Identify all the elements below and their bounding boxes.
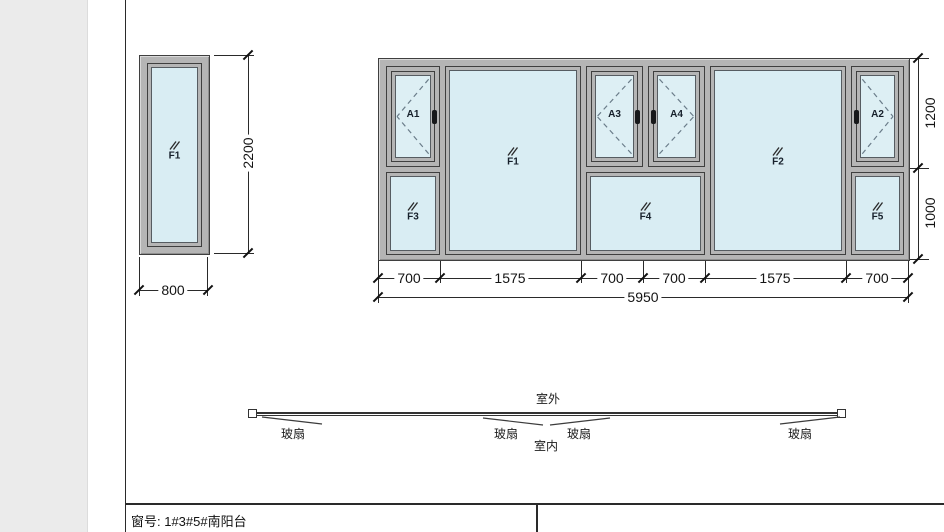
fixed-panel-f5[interactable]: F5: [851, 172, 904, 255]
dim-line-heights: [918, 58, 919, 259]
dim-label-segment: 700: [394, 271, 423, 285]
panel-label: A2: [871, 110, 884, 120]
window-handle-icon: [854, 110, 859, 124]
dim-label-segment: 700: [597, 271, 626, 285]
dim-label-left-height: 2200: [241, 134, 255, 171]
window-assembly-elevation[interactable]: A1 F3 F1: [378, 58, 910, 261]
extension-line: [910, 168, 929, 169]
sash-label: 玻扇: [494, 428, 518, 440]
casement-panel-a4[interactable]: A4: [648, 66, 705, 167]
extension-line: [440, 261, 441, 283]
panel-label: F1: [507, 146, 519, 167]
sash-label: 玻扇: [281, 428, 305, 440]
sash-label: 玻扇: [788, 428, 812, 440]
dim-label-segment: 1575: [491, 271, 528, 285]
dim-label-height-bottom: 1000: [923, 194, 937, 231]
extension-line: [846, 261, 847, 283]
glass-icon: [507, 146, 519, 156]
extension-line: [910, 58, 929, 59]
window-number-text: 窗号: 1#3#5#南阳台: [131, 511, 247, 530]
panel-label: F2: [772, 146, 784, 167]
panel-label: F5: [872, 201, 884, 222]
panel-label: A3: [608, 110, 621, 120]
glass-icon: [872, 201, 884, 211]
fixed-panel-f1[interactable]: F1: [445, 66, 581, 255]
window-handle-icon: [651, 110, 656, 124]
glass-icon: [407, 201, 419, 211]
title-block-top-border: [125, 503, 944, 505]
extension-line: [705, 261, 706, 283]
glass-icon: [169, 141, 181, 151]
panel-label: F3: [407, 201, 419, 222]
dim-label-height-top: 1200: [923, 94, 937, 131]
dim-label-left-width: 800: [158, 283, 187, 297]
glass-icon: [772, 146, 784, 156]
dim-label-segment: 1575: [756, 271, 793, 285]
fixed-panel-f1-left[interactable]: F1: [147, 63, 202, 247]
dim-label-segment: 700: [659, 271, 688, 285]
sash-label: 玻扇: [567, 428, 591, 440]
panel-label: A1: [407, 110, 420, 120]
extension-line: [910, 259, 929, 260]
casement-panel-a3[interactable]: A3: [586, 66, 643, 167]
window-handle-icon: [635, 110, 640, 124]
panel-label: F4: [640, 201, 652, 222]
title-block-divider: [536, 505, 538, 532]
fixed-panel-f4[interactable]: F4: [586, 172, 705, 255]
cad-drawing-canvas: F1 2200 800 A1: [0, 0, 944, 532]
dim-label-segment: 700: [862, 271, 891, 285]
dim-label-total-width: 5950: [624, 290, 661, 304]
glass-icon: [640, 201, 652, 211]
panel-label: F1: [169, 141, 181, 162]
casement-panel-a2[interactable]: A2: [851, 66, 904, 167]
extension-line: [581, 261, 582, 283]
casement-panel-a1[interactable]: A1: [386, 66, 440, 167]
fixed-panel-f3[interactable]: F3: [386, 172, 440, 255]
fixed-panel-f2[interactable]: F2: [710, 66, 846, 255]
left-panel-gutter[interactable]: [0, 0, 88, 532]
inside-label: 室内: [534, 440, 558, 452]
window-handle-icon: [432, 110, 437, 124]
extension-line: [643, 261, 644, 283]
sheet-border-line: [125, 0, 126, 532]
panel-label: A4: [670, 110, 683, 120]
left-window-elevation[interactable]: F1: [139, 55, 210, 255]
